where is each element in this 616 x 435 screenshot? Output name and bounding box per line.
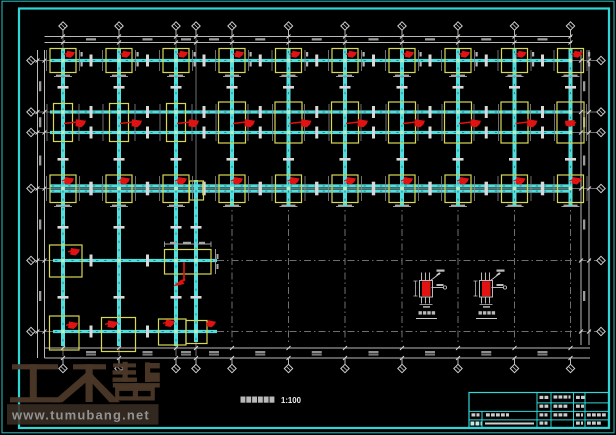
svg-text:www.tumubang.net: www.tumubang.net bbox=[11, 408, 150, 423]
svg-text:1:100: 1:100 bbox=[281, 396, 302, 405]
